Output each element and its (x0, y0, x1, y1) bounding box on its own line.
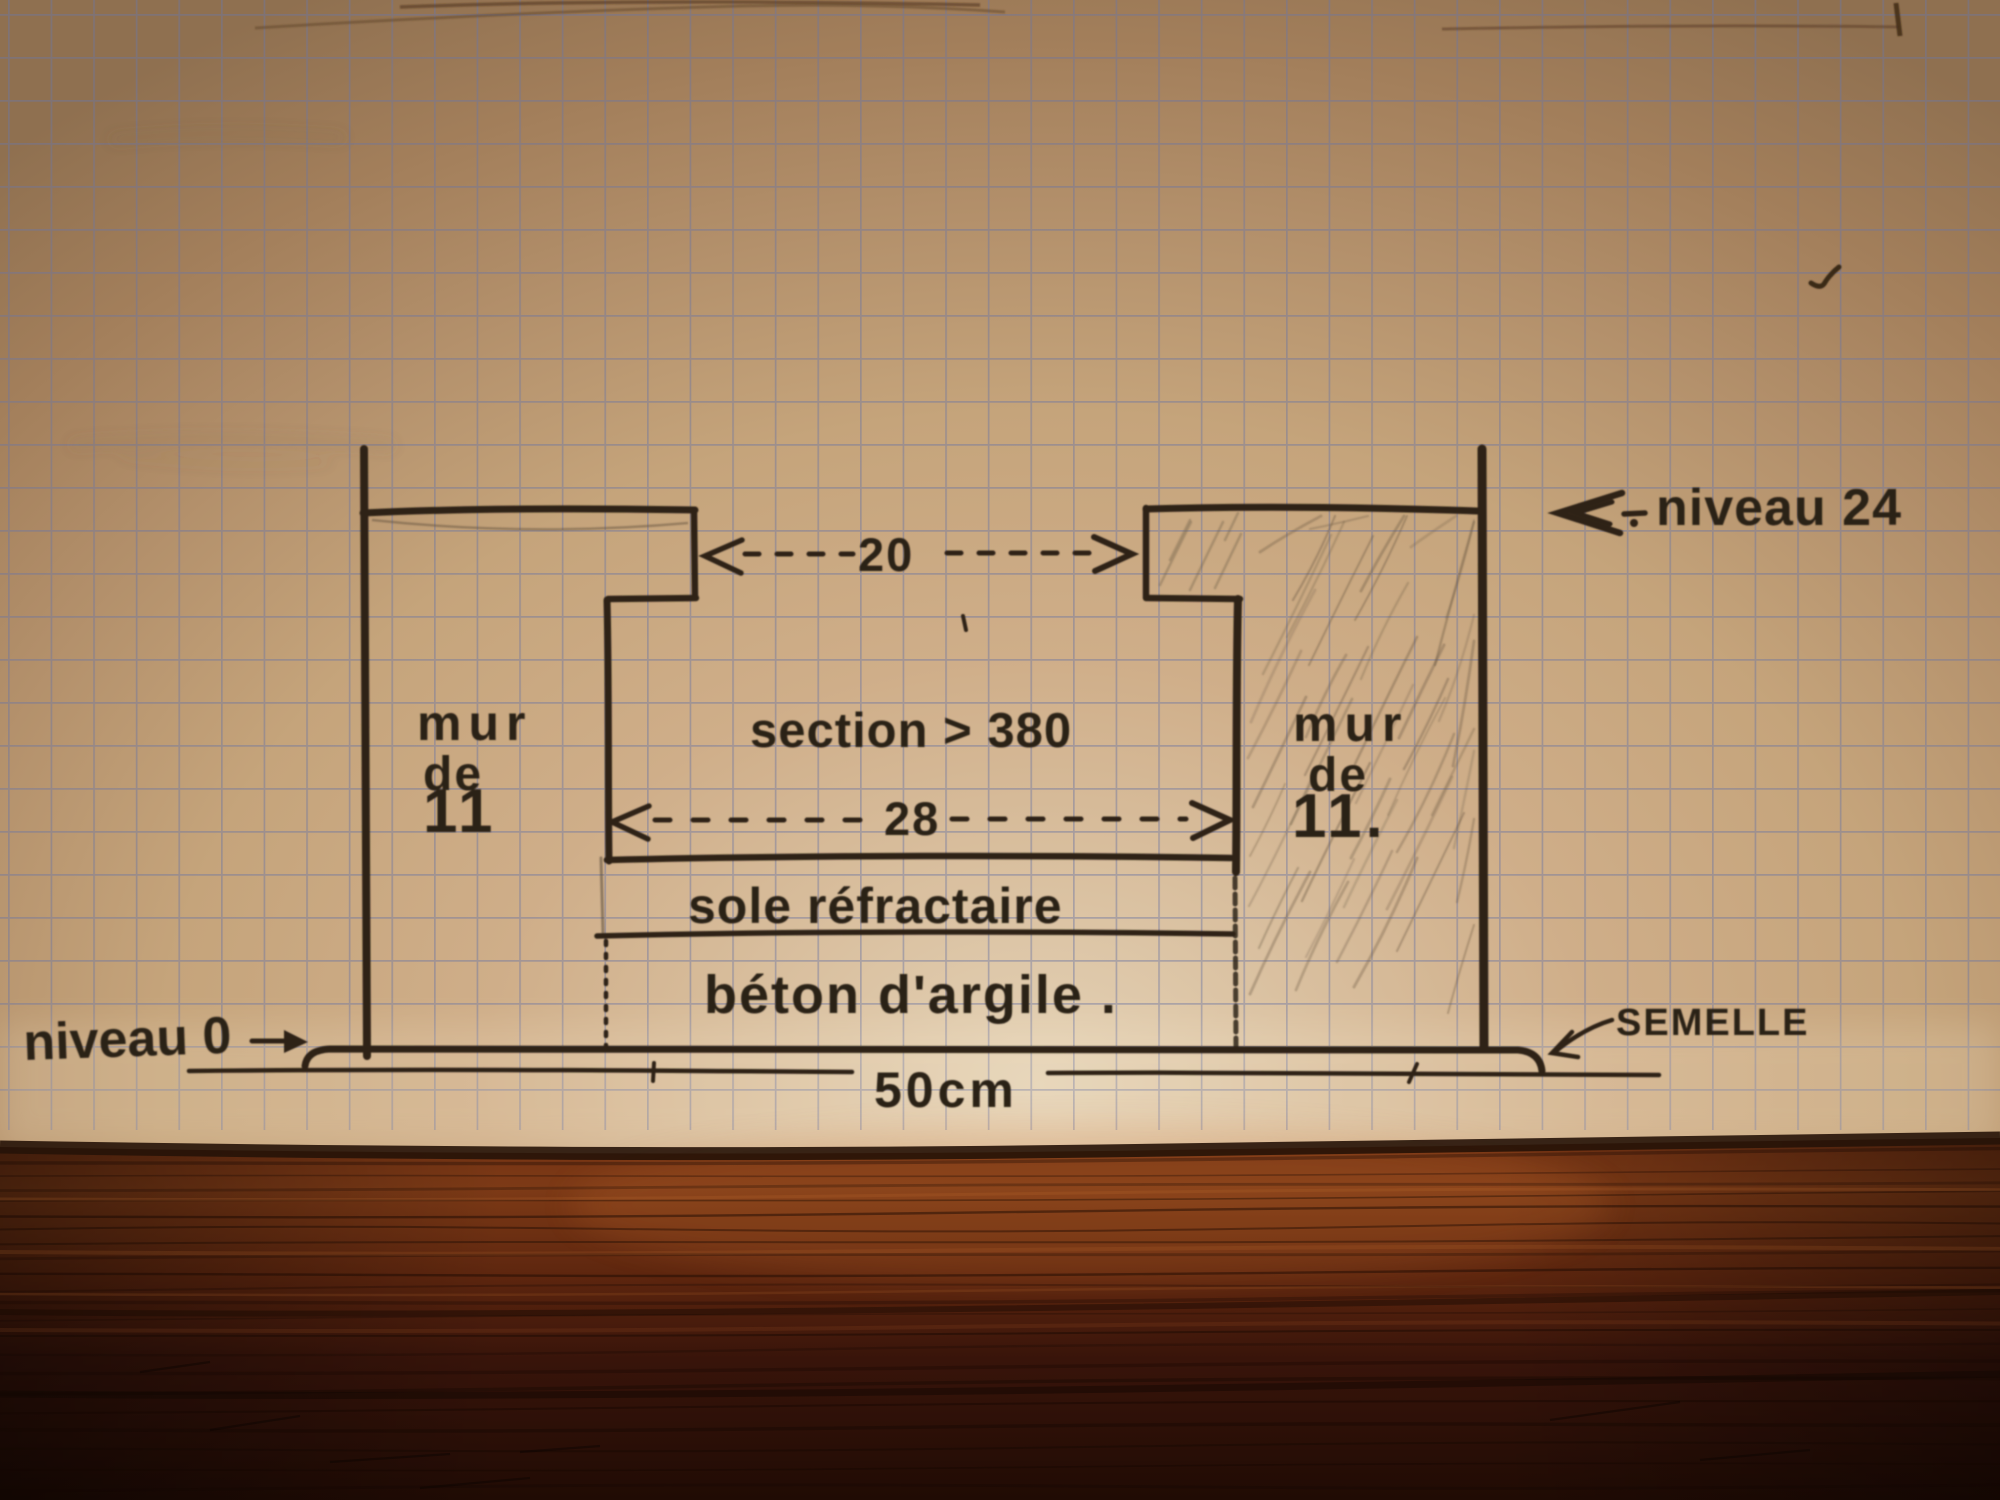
svg-text:sole réfractaire: sole réfractaire (688, 878, 1063, 934)
svg-text:niveau 0: niveau 0 (22, 1007, 232, 1072)
svg-text:section > 380: section > 380 (750, 704, 1072, 758)
svg-text:mur: mur (1293, 696, 1408, 752)
svg-text:SEMELLE: SEMELLE (1616, 1002, 1809, 1044)
svg-text:20: 20 (858, 528, 914, 581)
svg-text:11: 11 (423, 777, 497, 846)
svg-text:mur: mur (417, 695, 532, 751)
svg-text:28: 28 (884, 792, 940, 845)
svg-text:béton d'argile .: béton d'argile . (704, 965, 1118, 1025)
svg-text:niveau 24: niveau 24 (1656, 479, 1902, 537)
svg-text:11.: 11. (1292, 782, 1387, 851)
svg-text:50cm: 50cm (874, 1062, 1018, 1118)
